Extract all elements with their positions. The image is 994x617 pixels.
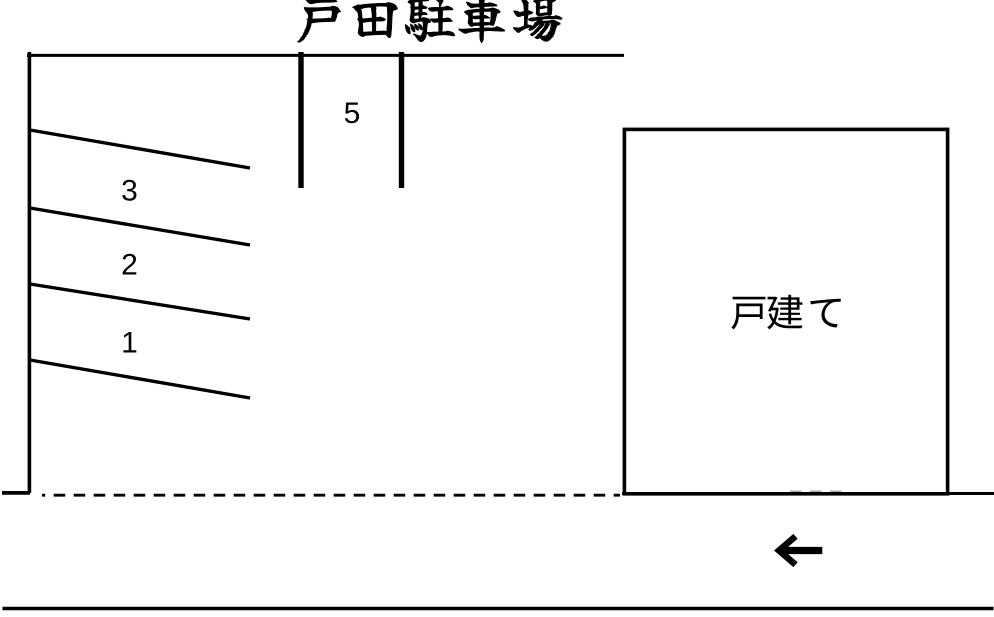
svg-text:3: 3: [121, 175, 138, 208]
svg-text:5: 5: [344, 97, 361, 130]
svg-text:2: 2: [121, 249, 138, 282]
svg-text:1: 1: [121, 327, 138, 360]
